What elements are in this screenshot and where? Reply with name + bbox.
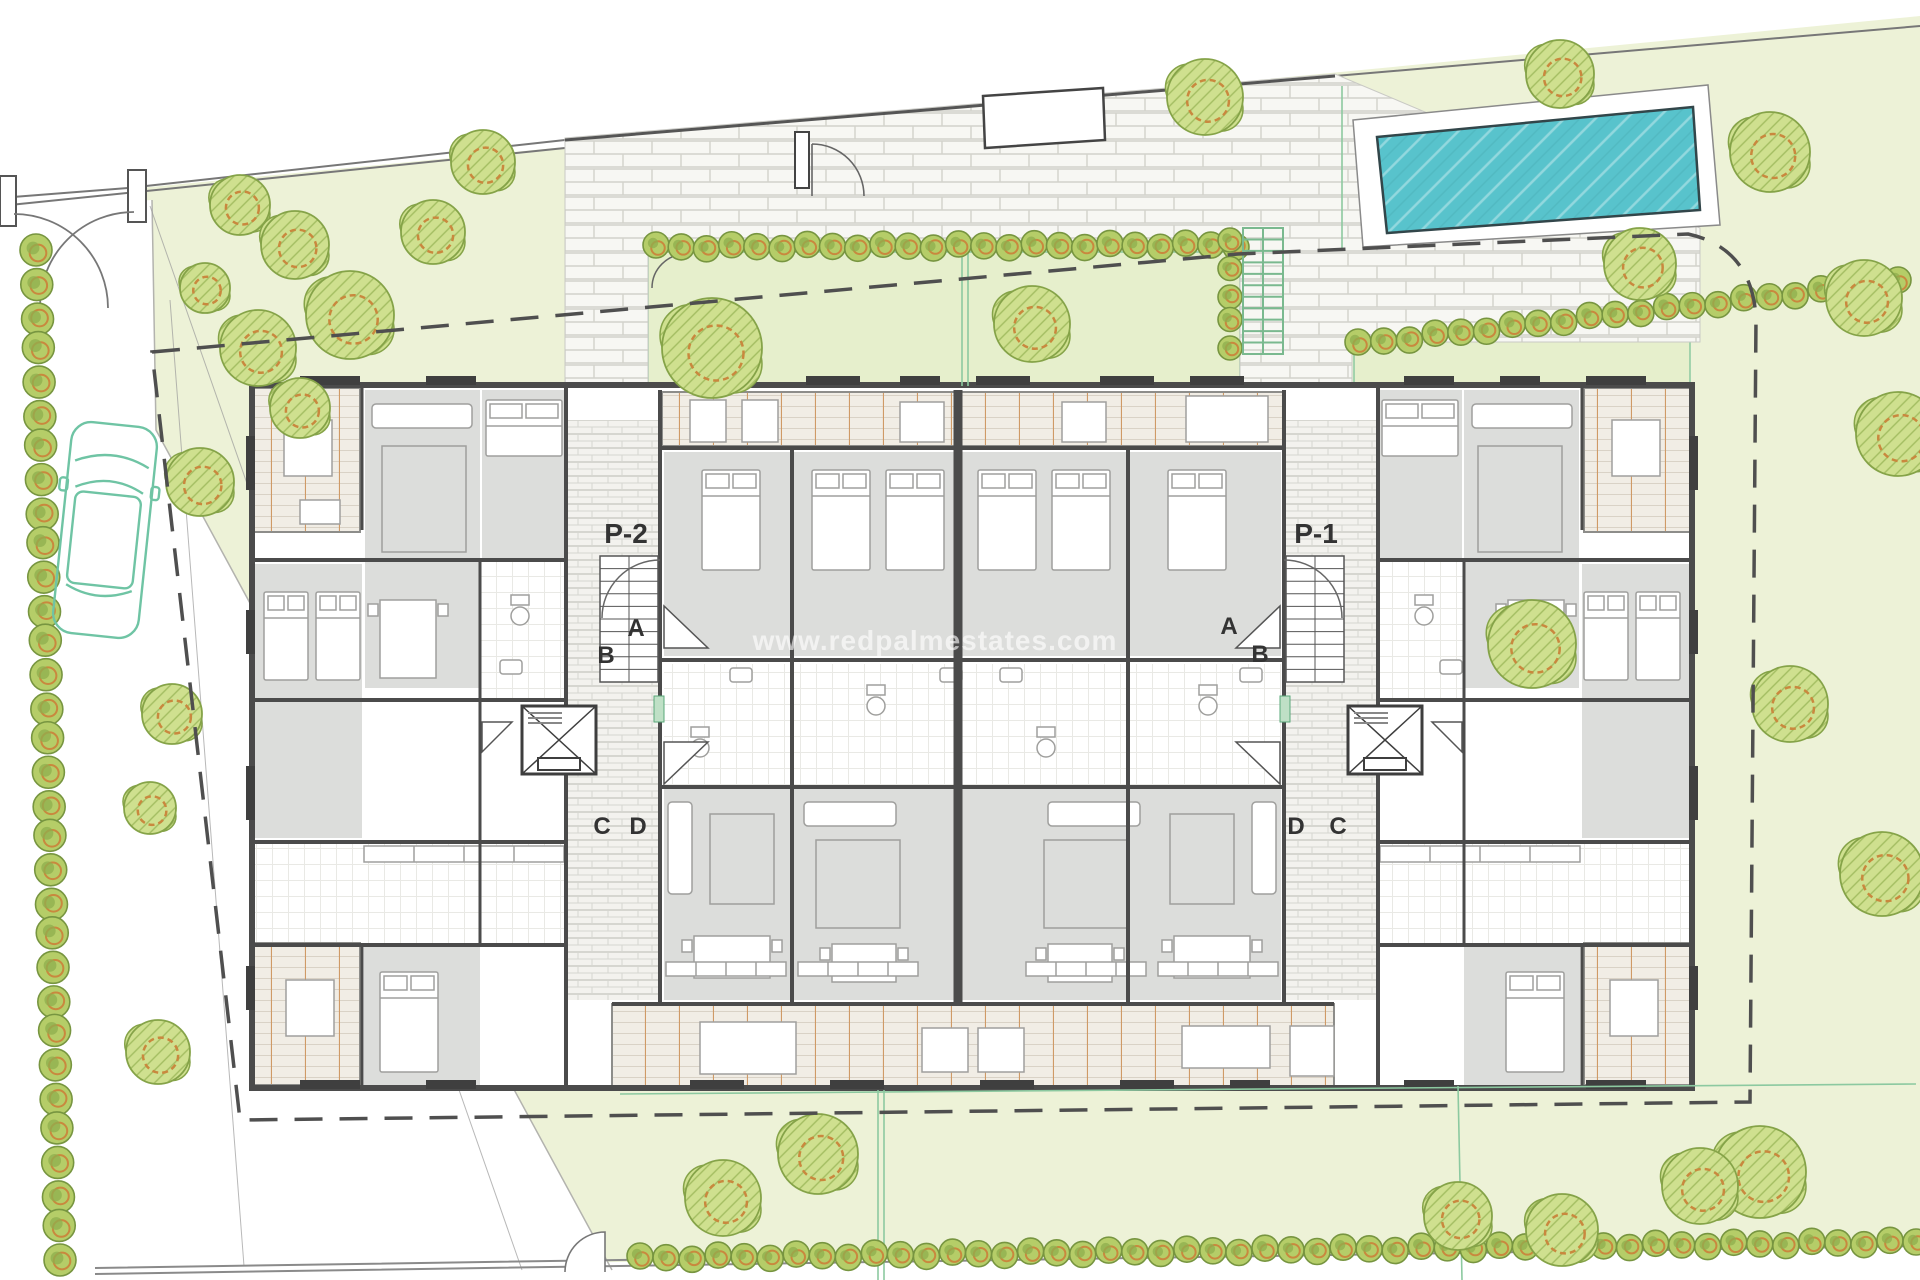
watermark-text: www.redpalmestates.com xyxy=(752,625,1118,656)
door-a-right: A xyxy=(1220,613,1237,640)
door-c-left: C xyxy=(593,813,610,840)
bathroom-zone xyxy=(480,562,566,700)
door-b-left: B xyxy=(597,642,614,669)
ground-floor-site-plan-drawing: P-2P-1ABCDABDC www.redpalmestates.com xyxy=(0,0,1920,1280)
gate-pillar xyxy=(0,176,16,226)
door-c-right: C xyxy=(1329,813,1346,840)
core-right-label: P-1 xyxy=(1294,518,1338,549)
door-d-right: D xyxy=(1287,813,1304,840)
door-d-left: D xyxy=(629,813,646,840)
gate-pillar xyxy=(128,170,146,222)
bathroom-zone xyxy=(664,664,1281,785)
site-plan-page: P-2P-1ABCDABDC www.redpalmestates.com xyxy=(0,0,1920,1280)
door-a-left: A xyxy=(627,615,644,642)
bathroom-zone xyxy=(1378,562,1464,700)
gate-pillar xyxy=(795,132,809,188)
door-b-right: B xyxy=(1251,641,1268,668)
apartment-building-plan xyxy=(246,376,1698,1089)
entrance-canopy xyxy=(983,88,1105,148)
core-left-label: P-2 xyxy=(604,518,648,549)
